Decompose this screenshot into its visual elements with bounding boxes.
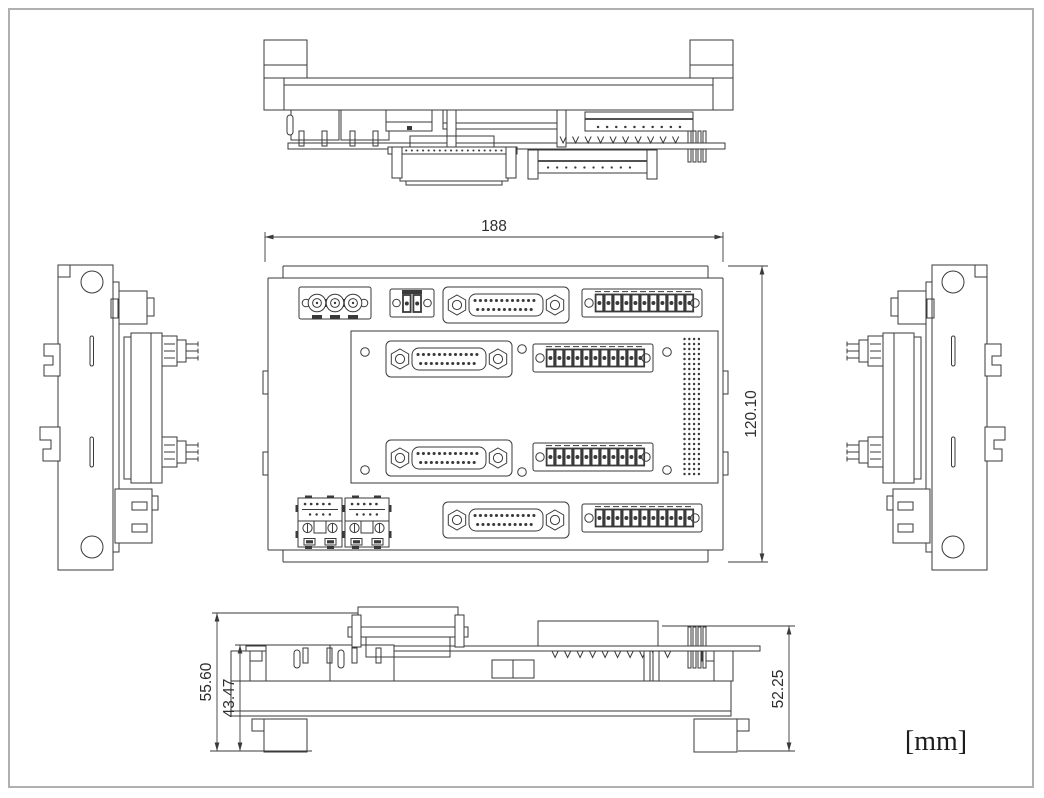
terminal-block-side [528,150,657,179]
top-view [264,40,733,185]
terminal-block [582,289,702,317]
db25-connector [443,502,569,538]
rj45-connector-side [287,110,389,146]
dimension-label-height: 120.10 [743,390,760,438]
power-terminal [299,287,371,319]
subboard-edge [443,110,566,147]
db25-connector [386,341,512,377]
din-clip [690,40,733,65]
aux-terminal [390,289,434,317]
units-label: [mm] [905,726,967,757]
dimension-label-right-height: 52.25 [770,670,787,709]
small-connector-side [492,651,659,681]
plan-view [263,266,728,562]
db25-connector-side [388,147,517,185]
terminal-block [533,443,653,471]
din-clip [264,40,307,65]
terminal-block [533,344,653,372]
prototyping-hole-grid [685,339,699,479]
terminal-block [582,504,702,532]
rj45-connector [343,496,392,550]
right-side-view [847,265,1005,570]
dimension-drawing: 188 120.10 55.60 43.47 [0,0,1044,798]
dimension-height: 120.10 [728,266,768,562]
din-clip [264,719,307,752]
bottom-view [231,607,760,752]
rj45-connector [296,496,345,550]
dimension-label-width: 188 [481,218,507,235]
module-bar [281,78,733,110]
dimension-label-overall-height: 55.60 [198,662,215,701]
terminal-block-side [538,621,671,658]
rj45-connector-side [266,645,394,681]
dimension-label-mid-height: 43.47 [221,679,238,718]
terminal-block-side [560,112,693,143]
technical-drawing-page: 188 120.10 55.60 43.47 [0,0,1044,798]
dimension-width: 188 [265,218,723,262]
small-connector-side [386,110,432,131]
db25-connector [386,440,512,476]
left-side-view [40,265,198,570]
db25-connector [443,287,569,323]
din-clip [694,719,737,752]
